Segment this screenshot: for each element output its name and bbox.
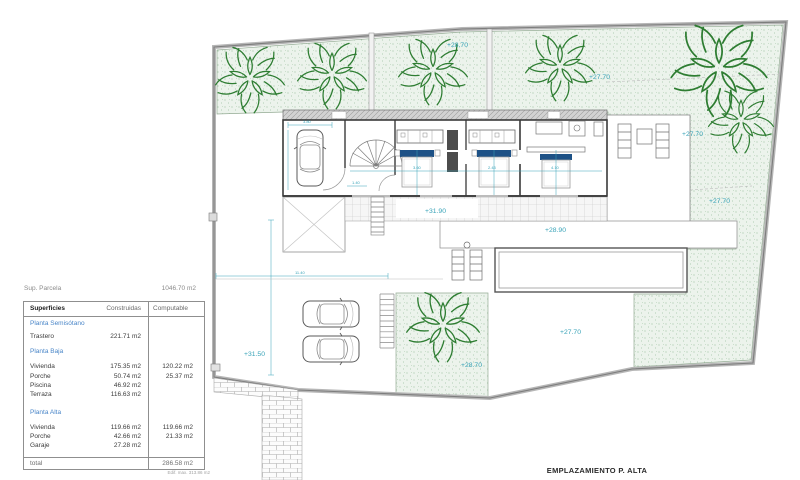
dim-label: 11.40 — [295, 270, 305, 275]
dim-label: 3.60 — [413, 165, 422, 170]
garden-area-middle — [396, 293, 488, 397]
total-rule — [24, 457, 204, 458]
table-row: Terraza116.63 m2 — [24, 391, 204, 400]
dim-label: 2.43 — [488, 165, 497, 170]
garden-wall-divider — [487, 29, 492, 112]
pool-deck — [440, 221, 737, 248]
col-superficies: Superficies — [30, 305, 65, 312]
col-computable: Computable — [153, 305, 194, 312]
gate-post — [209, 213, 217, 221]
table-row: Vivienda119.66 m2119.66 m2 — [24, 424, 204, 433]
elevation-label: +28.90 — [545, 227, 566, 234]
table-row: Vivienda175.35 m2120.22 m2 — [24, 363, 204, 372]
garden-stair — [380, 294, 394, 348]
dim-label: 4.10 — [551, 165, 560, 170]
elevation-label: +27.70 — [682, 131, 703, 138]
elevation-label: +28.70 — [461, 362, 482, 369]
shaft — [447, 130, 458, 150]
driveway-ramp — [283, 197, 345, 252]
elevation-label: +27.70 — [560, 329, 581, 336]
gate-post — [211, 364, 220, 371]
car-icon — [303, 298, 359, 330]
total-label: total — [30, 460, 42, 467]
areas-table: Superficies Construidas Computable Plant… — [23, 301, 205, 470]
elevation-label: +31.90 — [425, 208, 446, 215]
table-row: Trastero221.71 m2 — [24, 333, 204, 342]
header-rule — [24, 316, 204, 317]
table-header: Superficies Construidas Computable — [24, 305, 204, 314]
max-buildable-note: Edif. max. 313.86 m2 — [133, 470, 210, 475]
drawing-sheet: 11.40 3.80 3.60 2.43 4.10 1.40 +28.70 +2… — [0, 0, 800, 480]
elevation-label: +28.70 — [447, 42, 468, 49]
pool — [495, 248, 687, 292]
sheet-title: EMPLAZAMIENTO P. ALTA — [547, 466, 648, 475]
table-row: Planta Alta — [24, 409, 204, 418]
elevation-label: +27.70 — [709, 198, 730, 205]
car-icon — [303, 333, 359, 365]
elevation-label: +31.50 — [244, 351, 265, 358]
shaft — [447, 152, 458, 172]
total-value: 286.58 m2 — [152, 460, 193, 467]
table-row: Porche50.74 m225.37 m2 — [24, 373, 204, 382]
paved-access-path — [214, 378, 302, 480]
car-icon — [294, 130, 326, 186]
total-row: total 286.58 m2 — [24, 460, 204, 469]
dim-label: 1.40 — [352, 180, 361, 185]
dim-label: 3.80 — [303, 119, 312, 124]
parcel-area-value: 1046.70 m2 — [24, 285, 196, 292]
col-construidas: Construidas — [64, 305, 141, 312]
table-row: Porche42.66 m221.33 m2 — [24, 433, 204, 442]
table-row: Planta Semisótano — [24, 320, 204, 329]
elevation-label: +27.70 — [589, 74, 610, 81]
table-row: Piscina46.92 m2 — [24, 382, 204, 391]
garden-wall-divider — [369, 33, 374, 112]
table-row: Garaje27.28 m2 — [24, 442, 204, 451]
table-row: Planta Baja — [24, 348, 204, 357]
